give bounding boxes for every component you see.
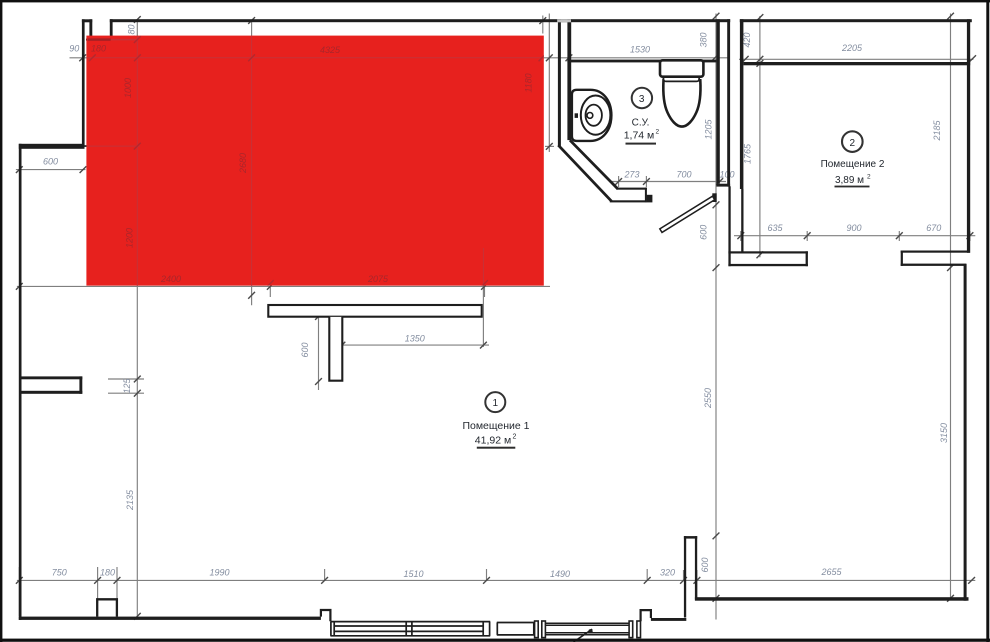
svg-text:Помещение 2: Помещение 2: [821, 159, 885, 170]
svg-text:2075: 2075: [367, 274, 389, 284]
svg-text:670: 670: [926, 223, 941, 233]
svg-text:600: 600: [698, 225, 708, 240]
svg-text:1530: 1530: [630, 45, 650, 55]
svg-text:1990: 1990: [209, 568, 229, 578]
svg-text:100: 100: [719, 170, 734, 180]
svg-text:2: 2: [867, 174, 871, 181]
svg-text:1490: 1490: [550, 569, 570, 579]
svg-text:С.У.: С.У.: [632, 118, 650, 129]
svg-text:900: 900: [846, 223, 861, 233]
svg-text:2400: 2400: [160, 274, 181, 284]
svg-text:600: 600: [43, 157, 58, 167]
svg-text:700: 700: [676, 170, 691, 180]
svg-text:600: 600: [700, 557, 710, 572]
svg-text:600: 600: [300, 342, 310, 357]
svg-text:3,89 м: 3,89 м: [835, 175, 864, 186]
svg-text:90: 90: [69, 44, 79, 54]
svg-text:180: 180: [100, 568, 115, 578]
svg-text:1200: 1200: [125, 228, 135, 248]
svg-text:125: 125: [122, 378, 132, 394]
svg-text:635: 635: [767, 223, 783, 233]
svg-text:380: 380: [699, 32, 709, 47]
svg-text:180: 180: [91, 44, 106, 54]
svg-text:2: 2: [850, 138, 856, 149]
svg-text:1205: 1205: [703, 118, 713, 139]
svg-text:2185: 2185: [932, 119, 942, 141]
svg-text:1510: 1510: [403, 569, 423, 579]
svg-text:320: 320: [660, 568, 675, 578]
svg-text:2: 2: [656, 129, 660, 136]
svg-text:2550: 2550: [703, 388, 713, 409]
svg-text:273: 273: [623, 170, 639, 180]
svg-text:2: 2: [513, 434, 517, 441]
svg-text:1765: 1765: [743, 143, 753, 164]
svg-text:41,92 м: 41,92 м: [475, 435, 511, 447]
svg-text:3150: 3150: [939, 423, 949, 443]
svg-text:Помещение 1: Помещение 1: [462, 420, 529, 432]
svg-text:1180: 1180: [524, 73, 534, 92]
svg-text:4325: 4325: [320, 45, 341, 55]
svg-text:3: 3: [639, 94, 645, 105]
svg-text:1000: 1000: [123, 78, 133, 98]
svg-text:1,74 м: 1,74 м: [624, 129, 655, 141]
svg-text:2135: 2135: [125, 489, 135, 511]
svg-text:2655: 2655: [820, 567, 842, 577]
svg-text:1: 1: [493, 398, 499, 409]
svg-text:2205: 2205: [841, 43, 863, 53]
svg-text:1350: 1350: [405, 334, 425, 344]
svg-text:750: 750: [52, 568, 67, 578]
svg-text:2680: 2680: [238, 153, 248, 174]
